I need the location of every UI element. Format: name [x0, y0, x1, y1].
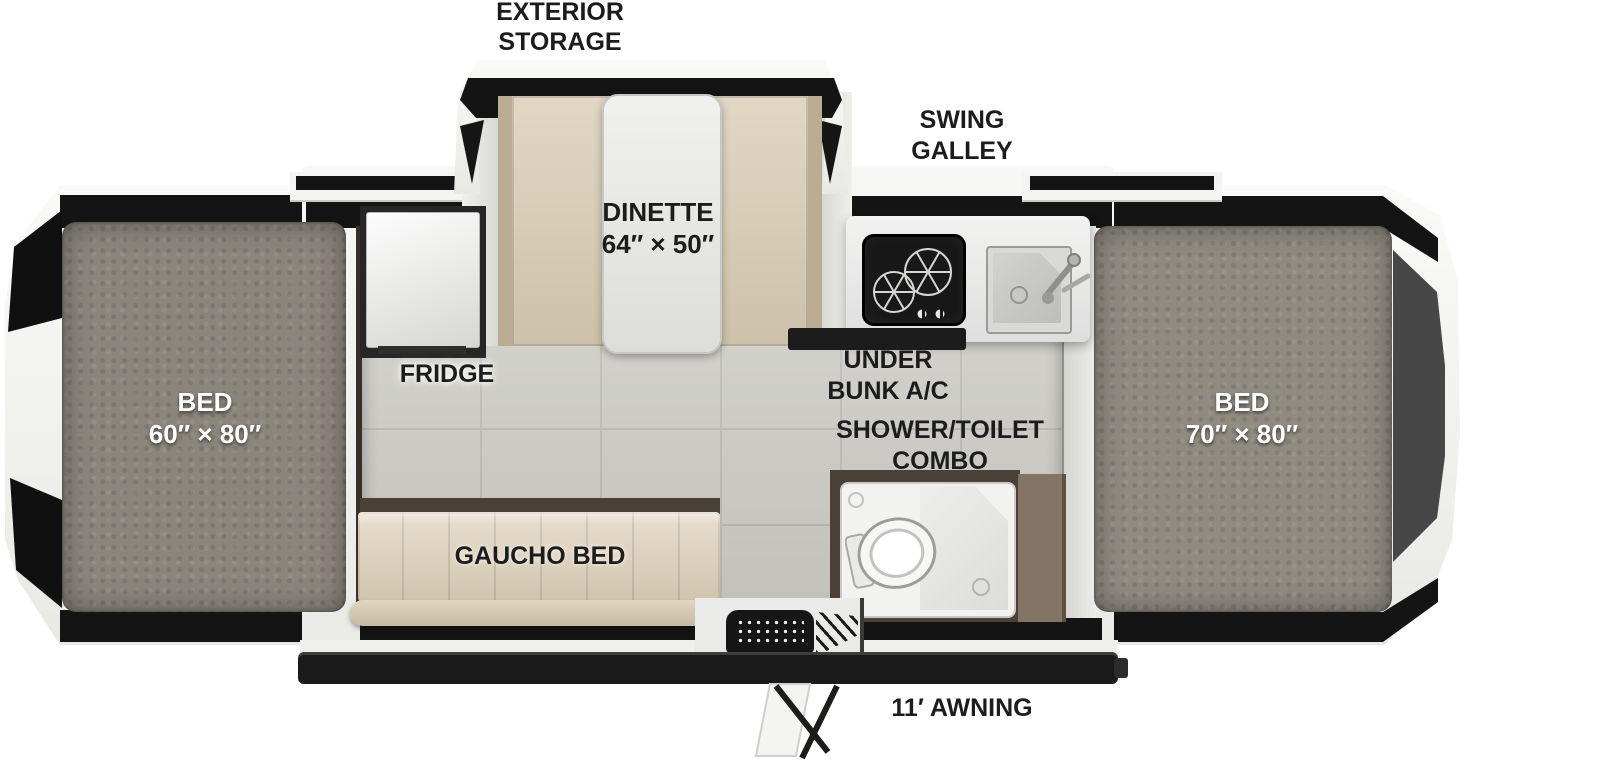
galley-faucet-icon: [1036, 244, 1090, 310]
dinette-label-line2: 64″ × 50″: [602, 230, 714, 258]
left-bed-mattress: [62, 222, 346, 612]
exterior-storage-label-line2: STORAGE: [498, 28, 621, 56]
left-roof-bar-trim: [296, 176, 458, 190]
swing-galley-label-line1: SWING: [920, 106, 1005, 134]
under-bunk-ac-label-line1: UNDER: [844, 346, 933, 374]
cooktop-burners-icon: [862, 234, 966, 326]
bed-left-label-line2: 60″ × 80″: [149, 420, 261, 448]
bed-right-label-line2: 70″ × 80″: [1186, 420, 1298, 448]
fridge: [366, 212, 480, 348]
dinette-label-line1: DINETTE: [602, 198, 713, 226]
gaucho-bed-label: GAUCHO BED: [455, 542, 626, 570]
awning-rail-end-cap: [1114, 658, 1128, 678]
galley-sink-drain: [1010, 286, 1028, 304]
entry-door-mat: [726, 610, 814, 654]
fridge-handle: [378, 346, 466, 354]
exterior-storage-label-line1: EXTERIOR: [496, 0, 624, 26]
entry-door-mat-dots: [736, 618, 804, 646]
toilet-icon: [845, 506, 941, 602]
bed-left-label-line1: BED: [178, 388, 233, 416]
floorplan: EXTERIOR STORAGE SWING GALLEY DINETTE 64…: [0, 0, 1600, 761]
dinette-bench-left: [498, 96, 612, 346]
entry-step-icon: [740, 682, 870, 760]
cooktop: [862, 234, 966, 326]
fridge-label: FRIDGE: [400, 360, 494, 388]
shower-toilet-label-line1: SHOWER/TOILET: [836, 416, 1044, 444]
shower-drain: [972, 578, 990, 596]
dinette-bench-right: [708, 96, 822, 346]
right-bunk-bottom-band: [1113, 612, 1383, 642]
awning-label: 11′ AWNING: [891, 694, 1032, 722]
awning-rail: [298, 652, 1118, 684]
shower-toilet-label-line2: COMBO: [892, 447, 988, 475]
shower-wall-right: [1018, 474, 1066, 622]
bed-right-label-line1: BED: [1215, 388, 1270, 416]
swing-galley-label-line2: GALLEY: [911, 137, 1012, 165]
gaucho-front-bolster: [350, 600, 724, 626]
under-bunk-ac-label-line2: BUNK A/C: [827, 377, 948, 405]
left-bunk-bottom-band: [60, 610, 305, 642]
right-roof-bar-trim: [1030, 176, 1214, 190]
